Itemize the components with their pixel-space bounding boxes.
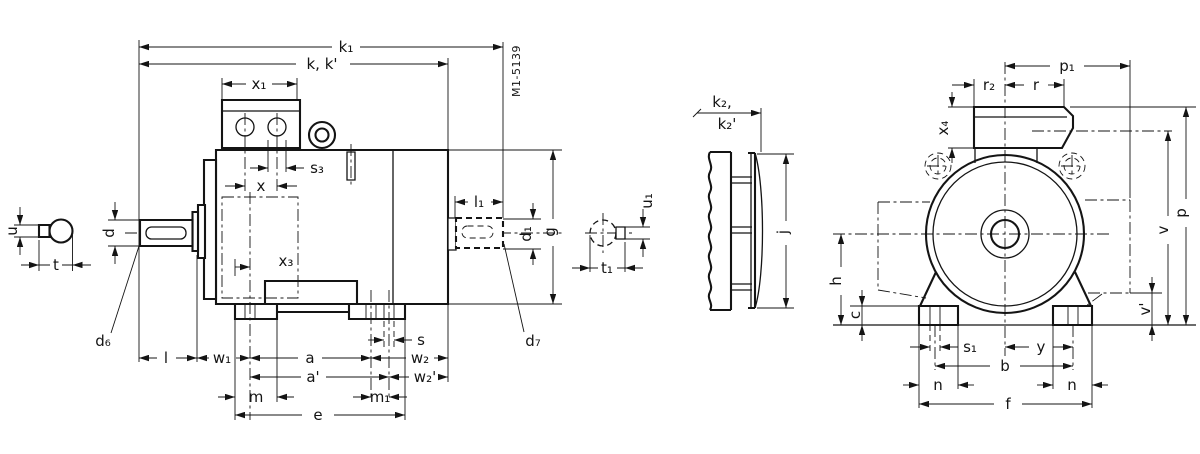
key-block — [39, 225, 50, 237]
dim-label-k: k, k' — [306, 55, 337, 73]
dim-label-v: v — [1154, 225, 1172, 234]
dim-label-l1: l₁ — [474, 193, 484, 211]
dim-label-w2-prime: w₂' — [414, 368, 436, 386]
dim-label-e: e — [313, 406, 322, 424]
dim-label-h: h — [827, 276, 845, 286]
rear-bearing-hub — [448, 218, 456, 250]
break-line — [709, 152, 711, 310]
drawing-canvas: u t — [0, 0, 1200, 454]
drawing-ref-code: M1-5139 — [510, 45, 523, 97]
dim-label-s3: s₃ — [310, 159, 324, 177]
dim-label-k2-prime: k₂' — [718, 115, 737, 133]
dim-label-d1: d₁ — [517, 226, 535, 242]
dim-label-x3: x₃ — [279, 252, 294, 270]
second-shaft-end — [456, 218, 503, 248]
dim-label-k1: k₁ — [339, 38, 354, 56]
dim-label-t1: t₁ — [601, 259, 613, 277]
optional-box-right — [1085, 200, 1130, 306]
dim-label-p: p — [1172, 208, 1190, 218]
dim-label-g: g — [541, 227, 559, 237]
rear-foot — [349, 304, 405, 319]
front-foot — [235, 304, 277, 319]
dim-label-k2: k₂, — [712, 93, 731, 111]
dim-label-x4: x₄ — [934, 121, 952, 136]
dim-label-m1: m₁ — [370, 388, 391, 406]
dim-label-s: s — [417, 331, 425, 349]
lifting-eye-icon — [309, 122, 335, 148]
dim-label-t: t — [53, 256, 59, 274]
front-view: p₁ r₂ r x₄ v p v' h c s₁ — [827, 57, 1196, 413]
dim-label-y: y — [1037, 338, 1046, 356]
dim-label-j: j — [774, 230, 792, 235]
dim-label-b: b — [1000, 357, 1010, 375]
dim-label-c: c — [846, 311, 864, 319]
d7-leader — [504, 244, 524, 332]
shaft-section-circle — [50, 220, 73, 243]
eyebolt-right-icon — [1059, 153, 1085, 179]
dim-label-v-prime: v' — [1136, 302, 1154, 315]
dim-label-d: d — [100, 228, 118, 238]
dim-label-x: x — [257, 177, 266, 195]
front-view-right-foot — [1053, 306, 1092, 325]
terminal-box — [222, 100, 300, 148]
dim-label-n-right: n — [1067, 376, 1077, 394]
key-notch — [616, 227, 625, 239]
dim-label-u: u — [3, 226, 21, 236]
dim-label-s1: s₁ — [963, 338, 977, 356]
dim-label-a-prime: a' — [306, 368, 319, 386]
dim-label-r: r — [1033, 76, 1040, 94]
dim-label-x1: x₁ — [252, 75, 267, 93]
front-view-left-foot — [919, 306, 958, 325]
dim-label-d7: d₇ — [525, 332, 541, 350]
second-shaft-section-detail: u₁ t₁ — [572, 193, 656, 277]
eyebolt-left-icon — [925, 153, 951, 179]
shaft-section-detail: u t — [3, 207, 91, 274]
front-view-right-foot-web — [1075, 272, 1091, 306]
dim-label-w1: w₁ — [213, 349, 231, 367]
dim-label-n-left: n — [933, 376, 943, 394]
dim-label-f: f — [1005, 395, 1011, 413]
optional-box-left — [878, 202, 930, 298]
front-view-left-foot-web — [920, 272, 936, 306]
dim-label-p1: p₁ — [1059, 57, 1075, 75]
cowl-curve — [755, 153, 763, 308]
cowl-ribs — [731, 177, 752, 290]
frame-end — [710, 152, 731, 310]
front-view-terminal-box — [974, 107, 1073, 148]
end-view: k₂, k₂' j — [693, 93, 794, 310]
dim-label-a: a — [305, 349, 314, 367]
motor-dimension-drawing: u t — [0, 0, 1200, 454]
drive-shaft — [140, 220, 193, 246]
side-view: u t — [3, 38, 656, 424]
dim-label-d6: d₆ — [95, 332, 111, 350]
dim-label-u1: u₁ — [638, 193, 656, 209]
dim-label-l: l — [164, 349, 168, 367]
dim-label-w2: w₂ — [411, 349, 429, 367]
dim-label-m: m — [249, 388, 264, 406]
dim-label-r2: r₂ — [983, 76, 995, 94]
